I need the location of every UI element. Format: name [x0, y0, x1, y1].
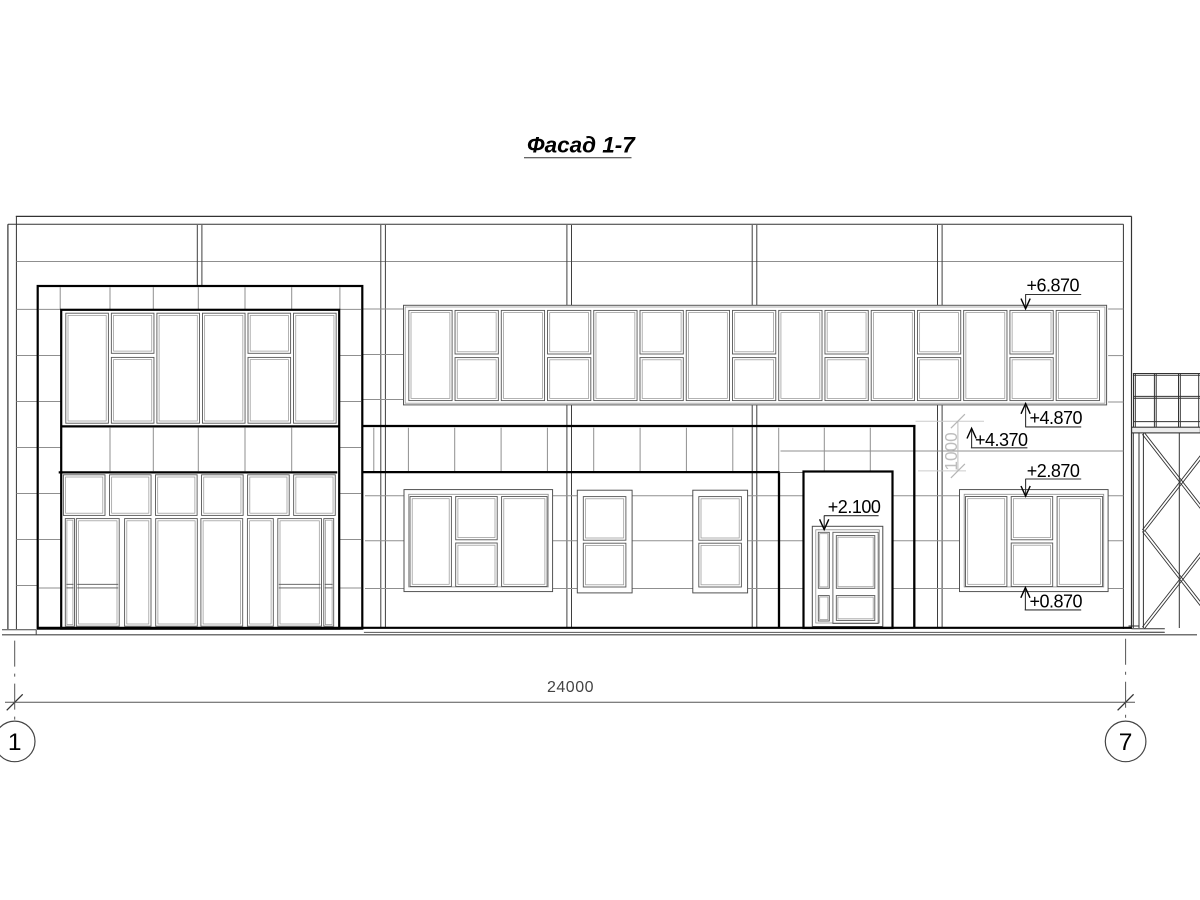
- svg-text:24000: 24000: [547, 679, 594, 696]
- svg-text:+0.870: +0.870: [1030, 592, 1083, 612]
- svg-text:1000: 1000: [941, 432, 961, 470]
- svg-text:Фасад 1-7: Фасад 1-7: [527, 133, 636, 158]
- svg-text:+4.370: +4.370: [975, 430, 1028, 450]
- svg-text:+2.870: +2.870: [1027, 461, 1080, 481]
- svg-text:+4.870: +4.870: [1030, 408, 1083, 428]
- svg-text:7: 7: [1119, 729, 1133, 756]
- svg-text:+2.100: +2.100: [828, 497, 881, 517]
- svg-text:1: 1: [8, 729, 22, 756]
- svg-text:+6.870: +6.870: [1027, 275, 1080, 295]
